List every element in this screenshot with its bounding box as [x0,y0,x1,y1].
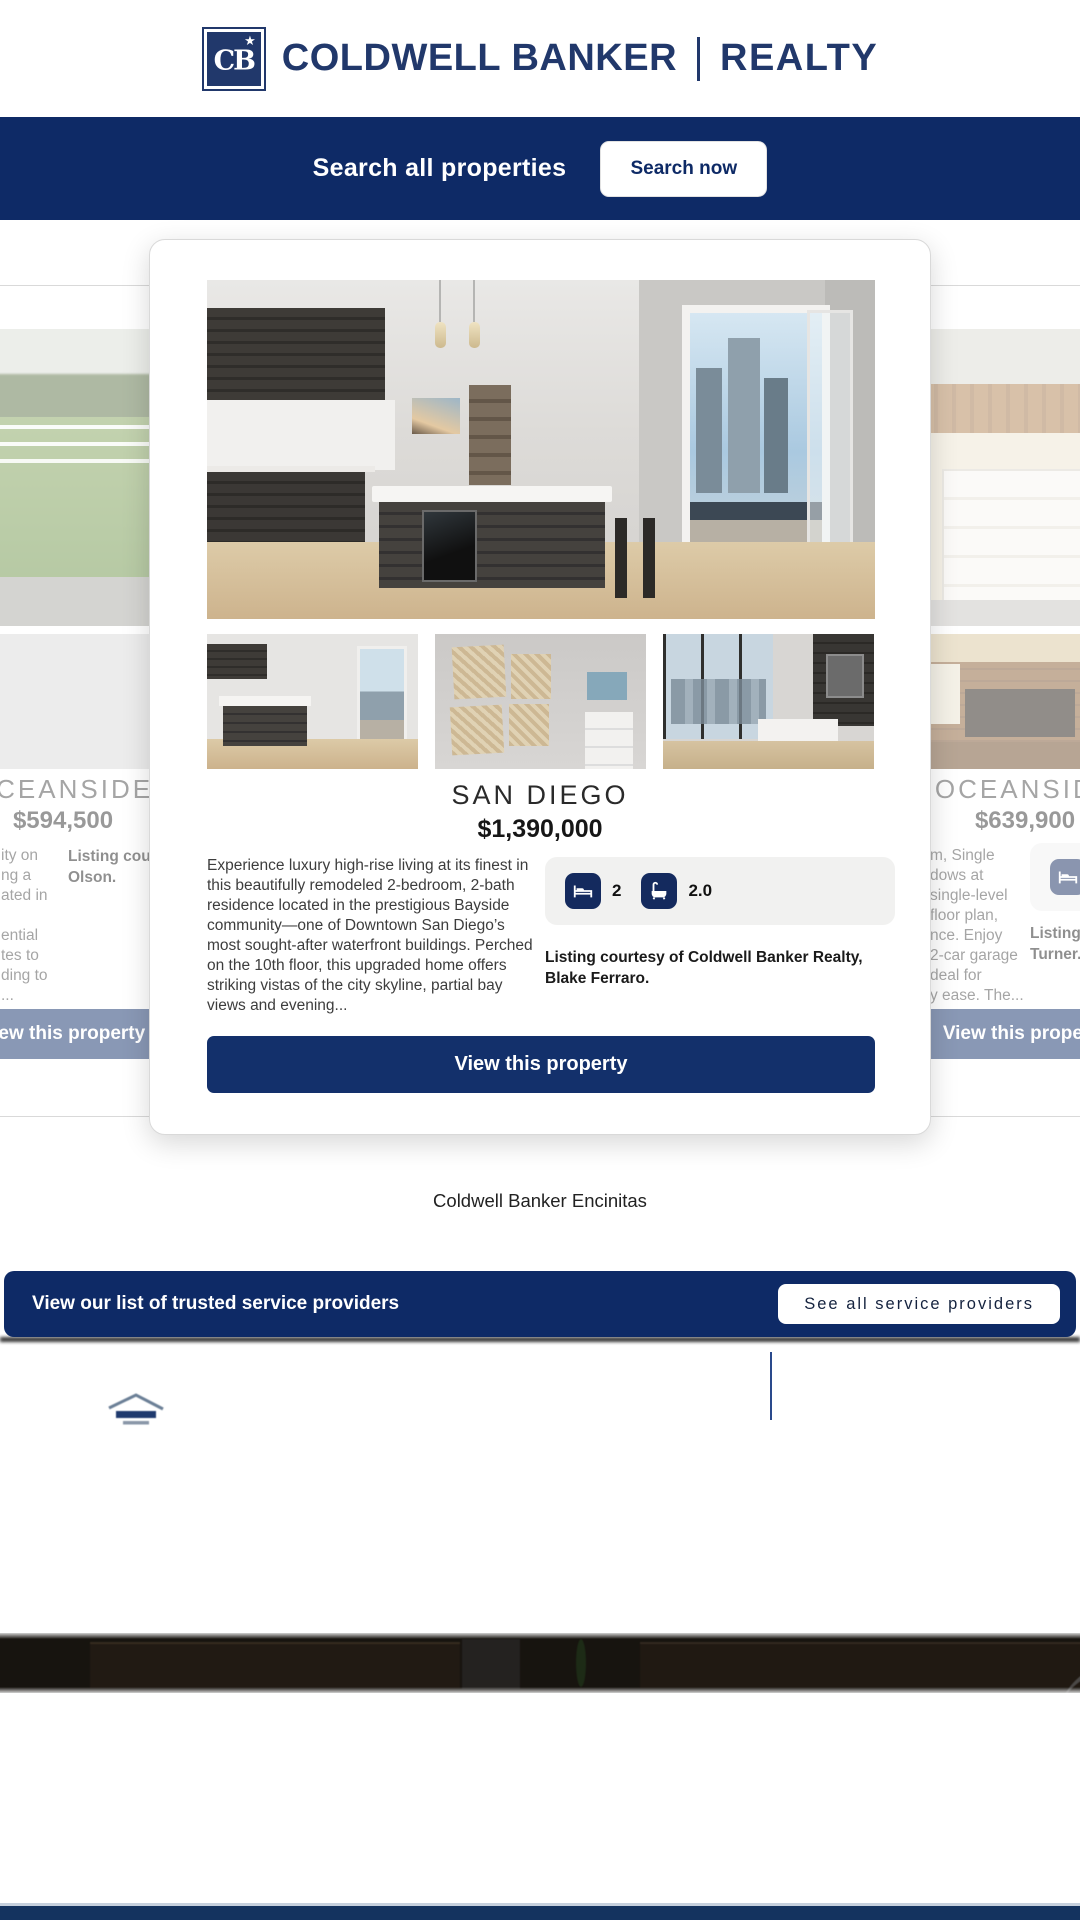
photo-thumbnails [207,634,875,769]
page: ★ CB COLDWELL BANKER REALTY Search all p… [0,0,1080,1920]
thumbnail-wall-art[interactable] [435,634,646,769]
cb-monogram: CB [214,45,254,76]
brand-division: REALTY [720,37,878,80]
property-photo[interactable] [207,280,875,619]
bed-icon [1050,859,1080,895]
beds-count: 2 [612,881,621,901]
see-all-providers-button[interactable]: See all service providers [778,1284,1060,1324]
beds-baths-box: 2 [1030,843,1080,911]
office-name: Coldwell Banker Encinitas [0,1190,1080,1212]
carousel-card-active: SAN DIEGO $1,390,000 Experience luxury h… [149,239,931,1135]
footer-strip [0,1903,1080,1920]
bar-shadow [0,1337,1080,1342]
view-property-button[interactable]: View this property [207,1036,875,1093]
card-city: SAN DIEGO [150,780,930,811]
garage-doors-logo[interactable] [106,1390,166,1436]
thumbnail-living-room[interactable] [663,634,874,769]
service-providers-bar: View our list of trusted service provide… [4,1271,1076,1337]
thumbnail-kitchen[interactable] [207,634,418,769]
search-label: Search all properties [313,154,567,183]
listing-courtesy: Listing courtesy of Coldwell Banker Real… [545,947,877,989]
cb-logo-mark-icon: ★ CB [202,27,266,91]
vertical-divider [770,1352,772,1420]
card-description: m, Single dows at single-level floor pla… [930,846,1024,1006]
brand-name: COLDWELL BANKER [282,37,677,80]
logo-divider [697,37,700,81]
card-price: $1,390,000 [150,815,930,844]
providers-label: View our list of trusted service provide… [32,1293,399,1315]
card-description: ity on ng a ated in ential tes to ding t… [1,846,48,1006]
site-header: ★ CB COLDWELL BANKER REALTY [0,0,1080,117]
bath-icon [641,873,677,909]
search-now-button[interactable]: Search now [600,141,767,197]
thumbnail[interactable] [920,634,1080,769]
listing-courtesy: Listing c Turner. [1030,923,1080,965]
bed-icon [565,873,601,909]
search-bar: Search all properties Search now [0,117,1080,220]
coldwell-banker-logo[interactable]: ★ CB COLDWELL BANKER REALTY [202,27,878,91]
thumbnail[interactable] [0,634,169,769]
card-description: Experience luxury high-rise living at it… [207,856,537,1016]
baths-count: 2.0 [688,881,712,901]
beds-baths-box: 2 2.0 [545,857,895,925]
dark-garage-photo [0,1633,1080,1693]
